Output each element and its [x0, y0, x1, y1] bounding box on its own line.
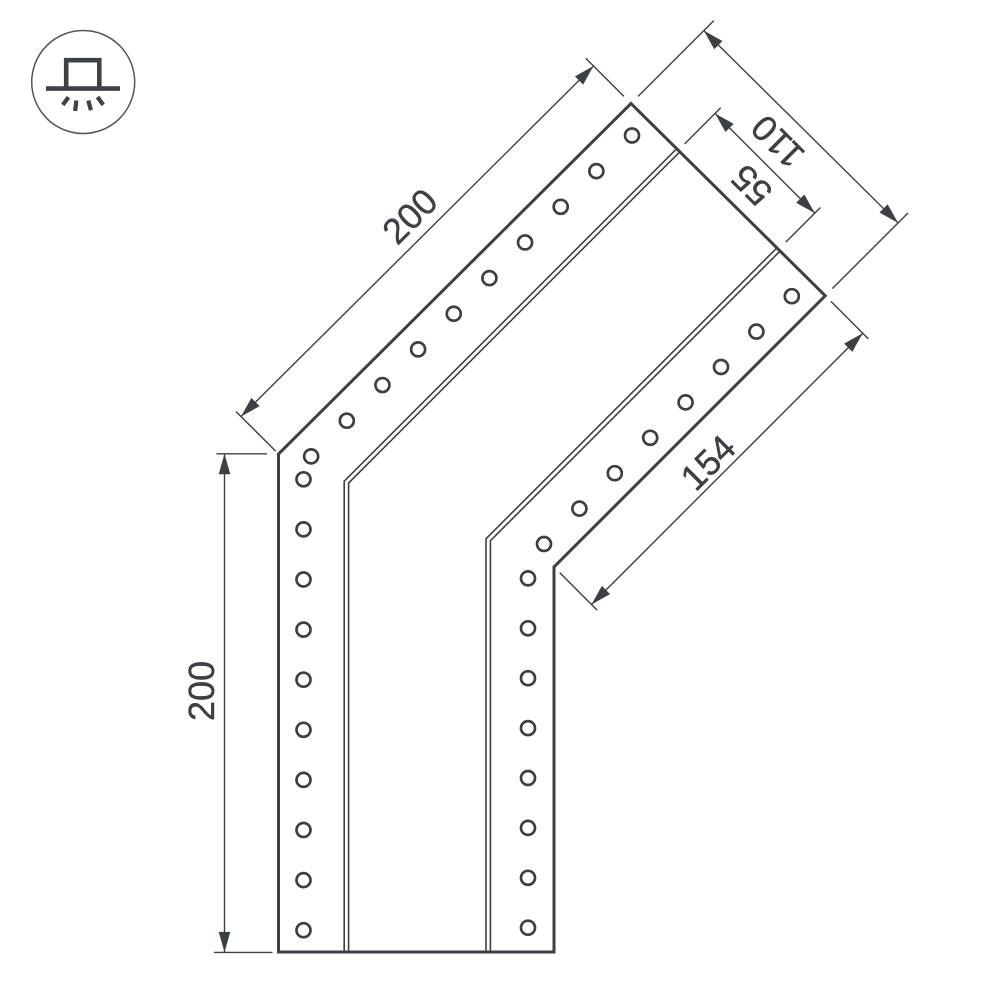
svg-text:200: 200: [181, 661, 222, 721]
svg-text:200: 200: [374, 180, 445, 251]
